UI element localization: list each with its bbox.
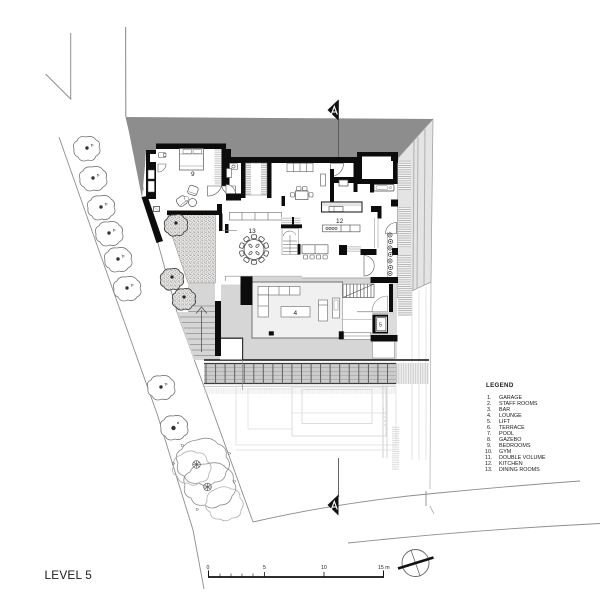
svg-text:10: 10 xyxy=(321,565,327,571)
svg-text:LEGEND: LEGEND xyxy=(486,382,514,389)
svg-text:4: 4 xyxy=(294,310,298,317)
svg-text:0: 0 xyxy=(207,565,210,571)
svg-text:9: 9 xyxy=(191,171,195,178)
svg-text:13: 13 xyxy=(249,228,257,235)
svg-text:12: 12 xyxy=(336,218,344,225)
svg-text:5: 5 xyxy=(263,565,266,571)
svg-text:LEVEL 5: LEVEL 5 xyxy=(45,568,93,582)
svg-text:5: 5 xyxy=(379,323,382,329)
svg-text:13.: 13. xyxy=(485,467,493,473)
svg-text:15 m: 15 m xyxy=(378,565,390,571)
svg-text:DINING ROOMS: DINING ROOMS xyxy=(499,467,540,473)
